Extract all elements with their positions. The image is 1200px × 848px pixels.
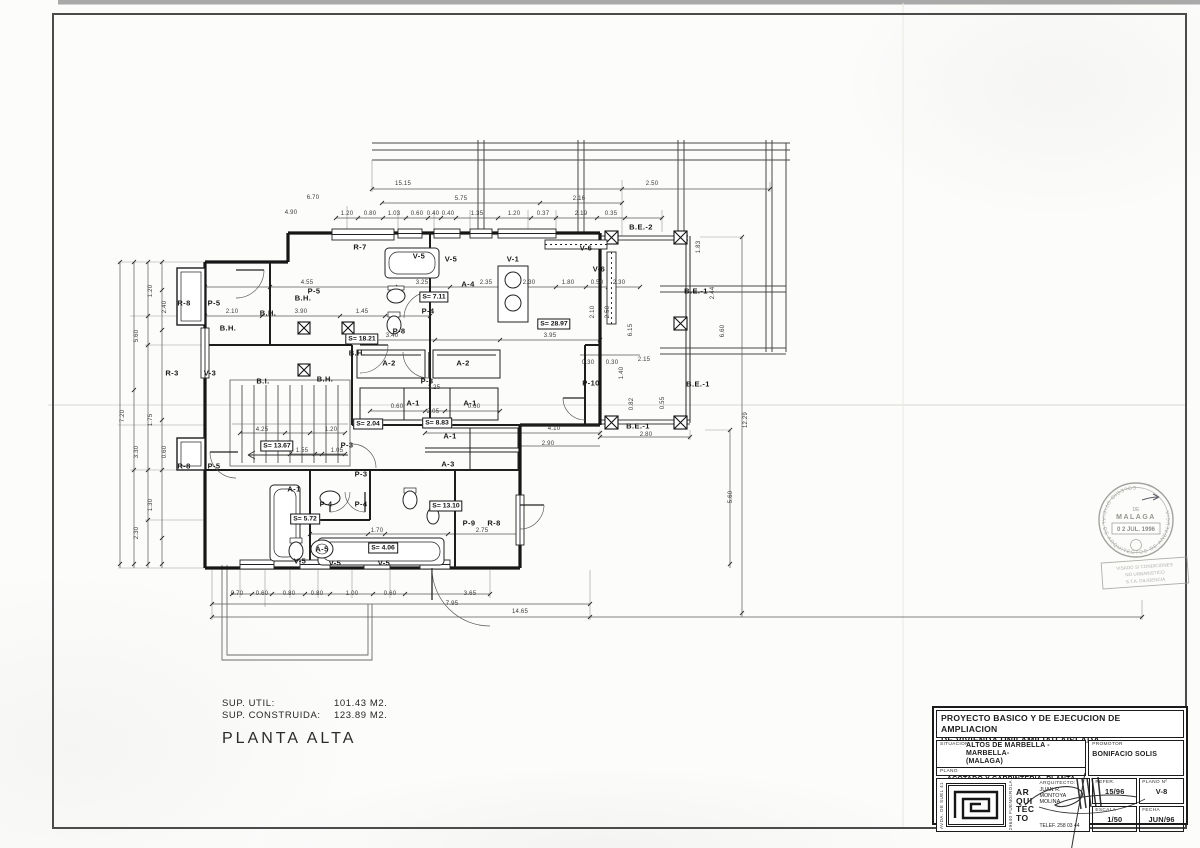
dimension-label: 1.00 <box>346 591 358 597</box>
dimension-label: 1.40 <box>619 367 625 379</box>
plan-code-label: V-6 <box>593 265 605 274</box>
dimension-label: 0.50 <box>591 280 603 286</box>
dimension-label: 3.40 <box>386 333 398 339</box>
sup-construida-value: 123.89 M2. <box>334 710 388 722</box>
stamp-de: DE <box>1133 507 1141 513</box>
room-area-label: S= 5.72 <box>290 514 320 525</box>
dimension-label: 0.60 <box>391 404 403 410</box>
dimension-label: 0.60 <box>411 211 423 217</box>
dimension-label: 3.95 <box>544 333 556 339</box>
dimension-label: 1.20 <box>341 211 353 217</box>
plan-code-label: B.H. <box>260 309 277 318</box>
plan-code-label: P-9 <box>463 519 476 528</box>
plan-code-label: A-4 <box>461 280 474 289</box>
telefono: TELEF. 258 03 44 <box>1040 823 1088 829</box>
plan-code-label: B.E.-1 <box>684 287 708 296</box>
architect-cell: AVDA. DE SUEL 41 29640 FUENGIROLA ARQUI … <box>936 778 1090 832</box>
plan-code-label: A-1 <box>406 399 419 408</box>
sup-util-value: 101.43 M2. <box>334 698 388 710</box>
scan-edge-shadow <box>58 0 1200 5</box>
promotor-cell: PROMOTOR BONIFACIO SOLIS <box>1088 740 1184 776</box>
dimension-label: 4.90 <box>285 210 297 216</box>
reference-grid: REFER. 15/96 PLANO Nº V-8 ESCALA 1/50 FE… <box>1092 778 1184 832</box>
situacion-value: ALTOS DE MARBELLA -MARBELLA- <box>966 742 1082 758</box>
escala-label: ESCALA <box>1095 808 1134 813</box>
plan-code-label: R-3 <box>165 369 178 378</box>
plan-code-label: A-1 <box>443 432 456 441</box>
room-area-label: S= 28.97 <box>537 319 570 330</box>
dimension-label: 12.29 <box>743 412 749 428</box>
escala-value: 1/50 <box>1095 816 1134 824</box>
plan-code-label: V-5 <box>413 252 425 261</box>
plan-code-label: P-4 <box>355 500 368 509</box>
situacion-cell: SITUACION ALTOS DE MARBELLA -MARBELLA- (… <box>936 740 1086 776</box>
sup-util-row: SUP. UTIL: 101.43 M2. <box>222 698 388 710</box>
lower-terrace-outline <box>222 565 372 660</box>
plan-code-label: P-4 <box>422 307 435 316</box>
dimension-label: 15.15 <box>395 181 411 187</box>
college-stamp: COLEGIO OFICIAL DE ARQUITECTOS DE ANDALU… <box>1090 478 1200 594</box>
plan-code-label: B.H. <box>220 324 237 333</box>
sup-construida-row: SUP. CONSTRUIDA: 123.89 M2. <box>222 710 388 722</box>
dimension-label: 2.05 <box>427 409 439 415</box>
dimension-label: 2.30 <box>523 280 535 286</box>
dimension-label: 0.37 <box>537 211 549 217</box>
refer-value: 15/96 <box>1095 788 1134 796</box>
drawing-sheet: R-7P-5V-5V-5V-1A-4P-4P-8B.H.B.H.B.H.B.H.… <box>0 0 1200 848</box>
plano-label: PLANO <box>940 769 1082 774</box>
plan-code-label: A-2 <box>456 359 469 368</box>
dimension-label: 3.30 <box>134 446 140 458</box>
dimension-label: 3.90 <box>295 309 307 315</box>
dimension-label: 5.75 <box>455 196 467 202</box>
dimension-label: 14.65 <box>512 609 528 615</box>
dimension-label: 7.95 <box>446 601 458 607</box>
dimension-label: 6.15 <box>628 324 634 336</box>
dimension-label: 1.80 <box>562 280 574 286</box>
address-left: AVDA. DE SUEL 41 <box>939 782 944 829</box>
dimension-label: 4.55 <box>301 280 313 286</box>
dimension-label: 2.35 <box>480 280 492 286</box>
dimension-label: 2.10 <box>226 309 238 315</box>
room-area-label: S= 18.21 <box>345 334 378 345</box>
project-title: PROYECTO BASICO Y DE EJECUCION DE AMPLIA… <box>936 710 1184 738</box>
plan-code-label: R-7 <box>353 243 366 252</box>
stamp-visa-line3: S.T.A. DILIGENCIA <box>1126 577 1167 585</box>
plan-code-label: B.H. <box>295 294 312 303</box>
dimension-label: 5.60 <box>134 330 140 342</box>
dimension-label: 1.45 <box>356 309 368 315</box>
dimension-label: 0.60 <box>256 591 268 597</box>
sup-construida-label: SUP. CONSTRUIDA: <box>222 710 334 722</box>
room-area-label: S= 7.11 <box>419 292 448 303</box>
dimension-label: 1.70 <box>371 528 383 534</box>
plan-code-label: V-3 <box>204 369 216 378</box>
sup-util-label: SUP. UTIL: <box>222 698 334 710</box>
dimension-label: 6.70 <box>307 195 319 201</box>
dimension-label: 0.30 <box>606 360 618 366</box>
dimension-label: 0.60 <box>468 404 480 410</box>
architect-logo <box>946 783 1006 827</box>
plan-code-label: B.E.-1 <box>686 380 710 389</box>
plan-code-label: P-10 <box>582 379 599 388</box>
dimension-label: 2.75 <box>476 528 488 534</box>
dimension-label: 0.82 <box>629 398 635 410</box>
refer-cell: REFER. 15/96 <box>1092 778 1137 804</box>
plan-code-label: P-3 <box>355 470 368 479</box>
dimension-label: 2.19 <box>575 211 587 217</box>
situacion-value2: (MALAGA) <box>966 758 1082 766</box>
area-summary: SUP. UTIL: 101.43 M2. SUP. CONSTRUIDA: 1… <box>222 698 388 748</box>
plan-code-label: B.E.-2 <box>629 223 653 232</box>
dimension-label: 1.55 <box>296 448 308 454</box>
dimension-label: 2.10 <box>590 306 596 318</box>
room-area-label: S= 13.10 <box>429 501 462 512</box>
floor-title: PLANTA ALTA <box>222 730 388 748</box>
dimension-label: 4.10 <box>548 426 560 432</box>
dimension-label: 1.05 <box>331 448 343 454</box>
plan-code-label: A-3 <box>441 460 454 469</box>
dimension-label: 0.80 <box>283 591 295 597</box>
plan-code-label: P-5 <box>208 299 221 308</box>
dimension-label: 0.70 <box>231 591 243 597</box>
promotor-value: BONIFACIO SOLIS <box>1092 751 1180 759</box>
room-area-label: S= 8.83 <box>422 418 452 429</box>
plan-code-label: B.I. <box>256 377 269 386</box>
fecha-label: FECHA <box>1142 808 1181 813</box>
dimension-label: 2.50 <box>646 181 658 187</box>
plan-code-label: B.H. <box>317 375 334 384</box>
plan-code-label: V-5 <box>294 557 306 566</box>
plan-code-label: V-6 <box>580 244 592 253</box>
plano-num-value: V-8 <box>1142 788 1181 796</box>
room-area-label: S= 4.06 <box>368 543 398 554</box>
escala-cell: ESCALA 1/50 <box>1092 806 1137 832</box>
dimension-label: 1.20 <box>325 427 337 433</box>
dimension-label: 2.80 <box>640 432 652 438</box>
dimension-label: 1.75 <box>148 414 154 426</box>
plan-code-label: B.E.-1 <box>626 422 650 431</box>
plano-num-label: PLANO Nº <box>1142 780 1181 785</box>
dimension-label: 1.20 <box>508 211 520 217</box>
fecha-cell: FECHA JUN/96 <box>1139 806 1184 832</box>
stamp-place: MALAGA <box>1116 514 1156 521</box>
dimension-label: 3.65 <box>464 591 476 597</box>
dimension-label: 6.60 <box>720 325 726 337</box>
dimension-label: 0.40 <box>427 211 439 217</box>
dimension-label: 3.25 <box>428 385 440 391</box>
title-block: PROYECTO BASICO Y DE EJECUCION DE AMPLIA… <box>932 706 1188 825</box>
dimension-label: 3.25 <box>416 280 428 286</box>
dimension-label: 2.90 <box>542 441 554 447</box>
arquitecto-logo-word: ARQUI TECTO <box>1016 788 1035 822</box>
plan-code-label: A-5 <box>315 545 328 554</box>
dimension-label: 2.15 <box>638 357 650 363</box>
dimension-label: 1.20 <box>148 285 154 297</box>
dimension-label: 1.30 <box>148 499 154 511</box>
plan-code-label: V-5 <box>329 559 341 568</box>
dimension-label: 0.80 <box>311 591 323 597</box>
dimension-label: 0.55 <box>660 397 666 409</box>
dimension-label: 1.83 <box>696 241 702 253</box>
plan-code-label: B.H. <box>349 349 366 358</box>
dimension-label: 0.60 <box>384 591 396 597</box>
room-area-label: S= 2.04 <box>353 419 383 430</box>
promotor-label: PROMOTOR <box>1092 742 1180 747</box>
dimension-label: 2.44 <box>710 287 716 299</box>
dimension-label: 1.35 <box>471 211 483 217</box>
project-title-line1: PROYECTO BASICO Y DE EJECUCION DE AMPLIA… <box>941 713 1179 735</box>
plan-code-label: V-5 <box>378 559 390 568</box>
dimension-label: 2.30 <box>134 527 140 539</box>
plan-code-label: V-1 <box>507 255 519 264</box>
arquitecto-name: JUAN R. MONTOYA MOLINA <box>1040 787 1088 805</box>
dimension-label: 5.60 <box>728 491 734 503</box>
spiral-logo-icon <box>950 787 1002 823</box>
dimension-label: 4.25 <box>256 427 268 433</box>
plan-code-label: V-5 <box>445 255 457 264</box>
plan-code-label: A-2 <box>382 359 395 368</box>
dimension-label: 2.30 <box>613 280 625 286</box>
dimension-label: 0.60 <box>162 446 168 458</box>
fecha-value: JUN/96 <box>1142 816 1181 824</box>
dimension-label: 0.35 <box>605 211 617 217</box>
dimension-label: 1.03 <box>388 211 400 217</box>
dimension-label: 2.16 <box>573 196 585 202</box>
room-area-label: S= 13.67 <box>260 441 293 452</box>
refer-label: REFER. <box>1095 780 1134 785</box>
dimension-label: 0.40 <box>442 211 454 217</box>
plan-code-label: R-8 <box>177 462 190 471</box>
address-right: 29640 FUENGIROLA <box>1008 780 1013 830</box>
plan-code-label: R-8 <box>487 519 500 528</box>
plan-code-label: P-5 <box>208 462 221 471</box>
dimension-label: 7.20 <box>120 410 126 422</box>
dimension-label: 0.80 <box>364 211 376 217</box>
dimension-label: 2.40 <box>162 301 168 313</box>
plan-code-label: P-4 <box>320 500 333 509</box>
stamp-date: 0 2 JUL. 1996 <box>1117 527 1156 533</box>
dimension-label: 2.50 <box>605 306 611 318</box>
plan-code-label: A-1 <box>287 485 300 494</box>
dimension-label: 0.30 <box>582 360 594 366</box>
plan-code-label: R-8 <box>177 299 190 308</box>
plano-num-cell: PLANO Nº V-8 <box>1139 778 1184 804</box>
